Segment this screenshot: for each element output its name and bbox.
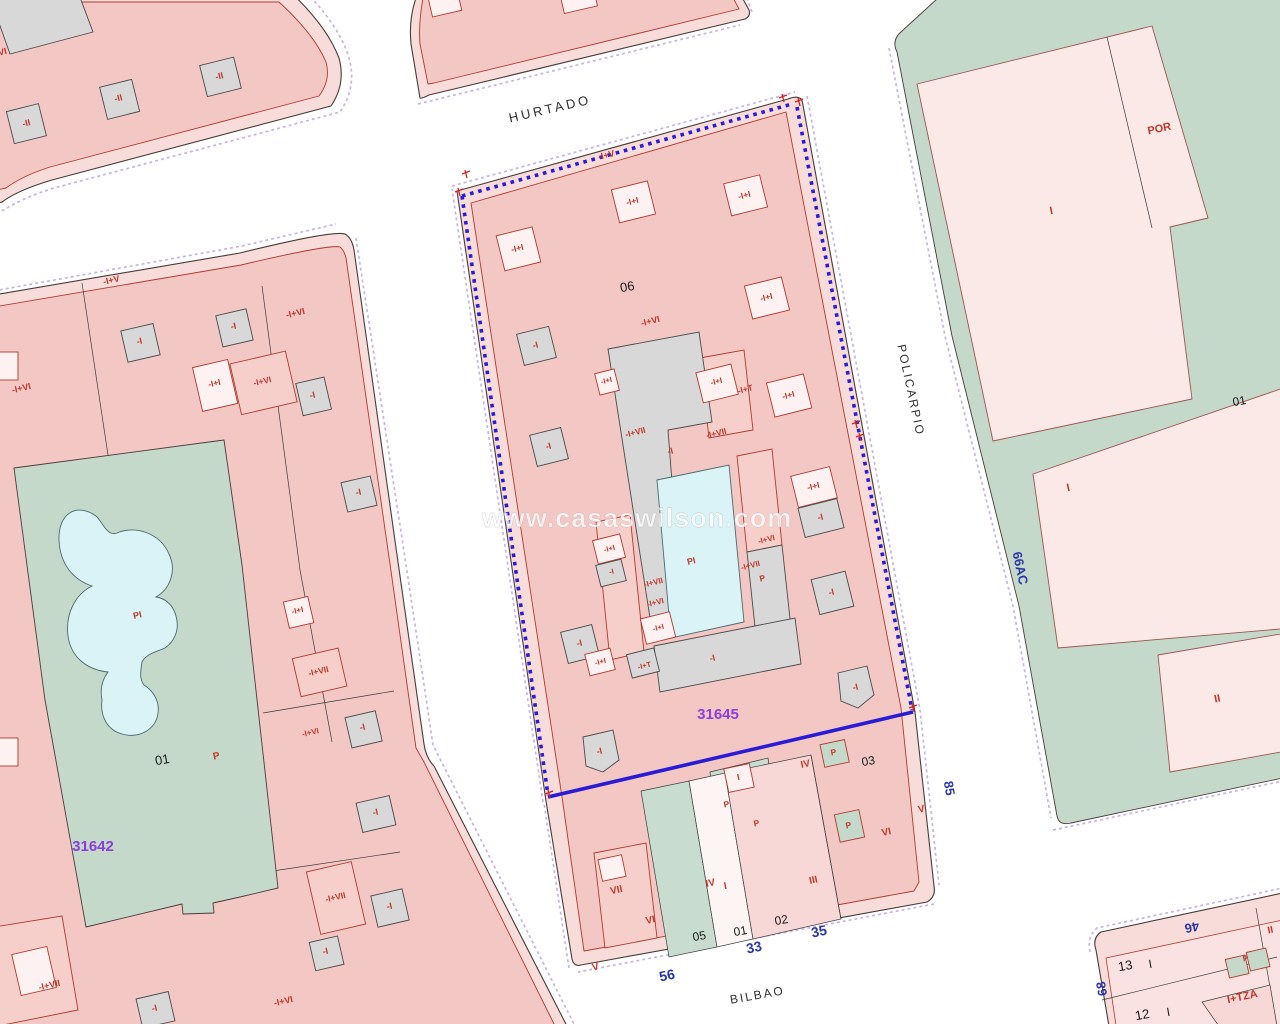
building-footprint bbox=[598, 855, 626, 882]
building-footprint bbox=[0, 738, 18, 766]
house-number-85: 85 bbox=[941, 780, 958, 797]
parcel-number-12: 12 bbox=[1134, 1006, 1151, 1023]
watermark: www.casaswilson.com bbox=[481, 503, 793, 533]
parcel-number-13: 13 bbox=[1117, 957, 1134, 974]
parcel-number-06: 06 bbox=[619, 278, 636, 295]
building-footprint bbox=[0, 352, 18, 380]
parcel-number-31645: 31645 bbox=[697, 706, 739, 723]
parcel-number-31642: 31642 bbox=[72, 838, 114, 855]
parcel-number-02: 02 bbox=[774, 912, 790, 928]
parcel-number-01: 01 bbox=[733, 923, 749, 939]
parcel-number-01-right-block: 01 bbox=[1232, 393, 1248, 409]
house-number-46: 46 bbox=[1183, 919, 1200, 937]
house-number-68: 68 bbox=[1093, 980, 1110, 997]
building-footprint bbox=[1246, 948, 1270, 971]
swimming-pool-central bbox=[657, 465, 744, 638]
parcel-number-01-left-block: 01 bbox=[154, 751, 171, 768]
parcel-number-05: 05 bbox=[692, 928, 708, 944]
parcel-number-03: 03 bbox=[861, 753, 877, 769]
cadastral-map: -II-II-II-I+VI-I+V-I+VI-I-I-I+I-I+VI-I-I… bbox=[0, 0, 1280, 1024]
